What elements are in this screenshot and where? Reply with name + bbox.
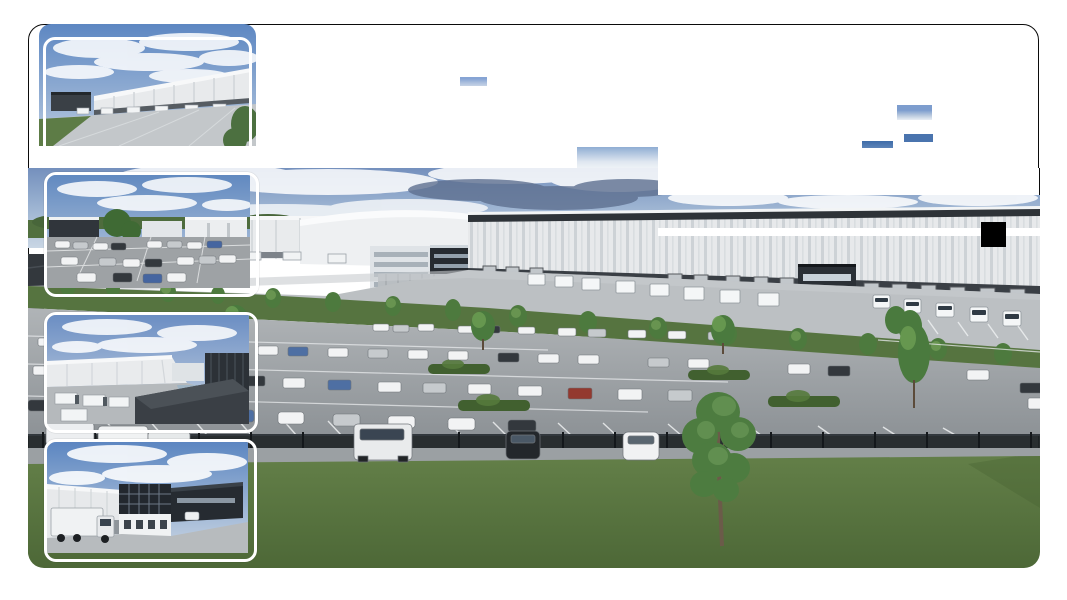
sky-tile [577, 147, 658, 168]
thumbnail-4-art [47, 442, 248, 553]
thumbnail-1[interactable] [39, 24, 256, 146]
thumbnail-3-art [47, 315, 249, 424]
thumbnail-2-art [47, 175, 250, 288]
sky-fragment-4 [862, 141, 893, 148]
thumbnail-2[interactable] [44, 172, 259, 297]
unloaded-tile-white [658, 168, 1040, 195]
black-square-artifact [981, 222, 1006, 247]
page: { "page": { "background": "#ffffff", "st… [0, 0, 1067, 600]
sky-fragment-3 [904, 134, 933, 142]
thumbnail-3[interactable] [44, 312, 258, 433]
thumbnail-1-frame [43, 37, 252, 146]
sky-fragment-1 [460, 77, 487, 86]
sky-fragment-2 [897, 105, 932, 120]
thumbnail-4[interactable] [44, 439, 257, 562]
border-segment-right [1039, 168, 1041, 195]
